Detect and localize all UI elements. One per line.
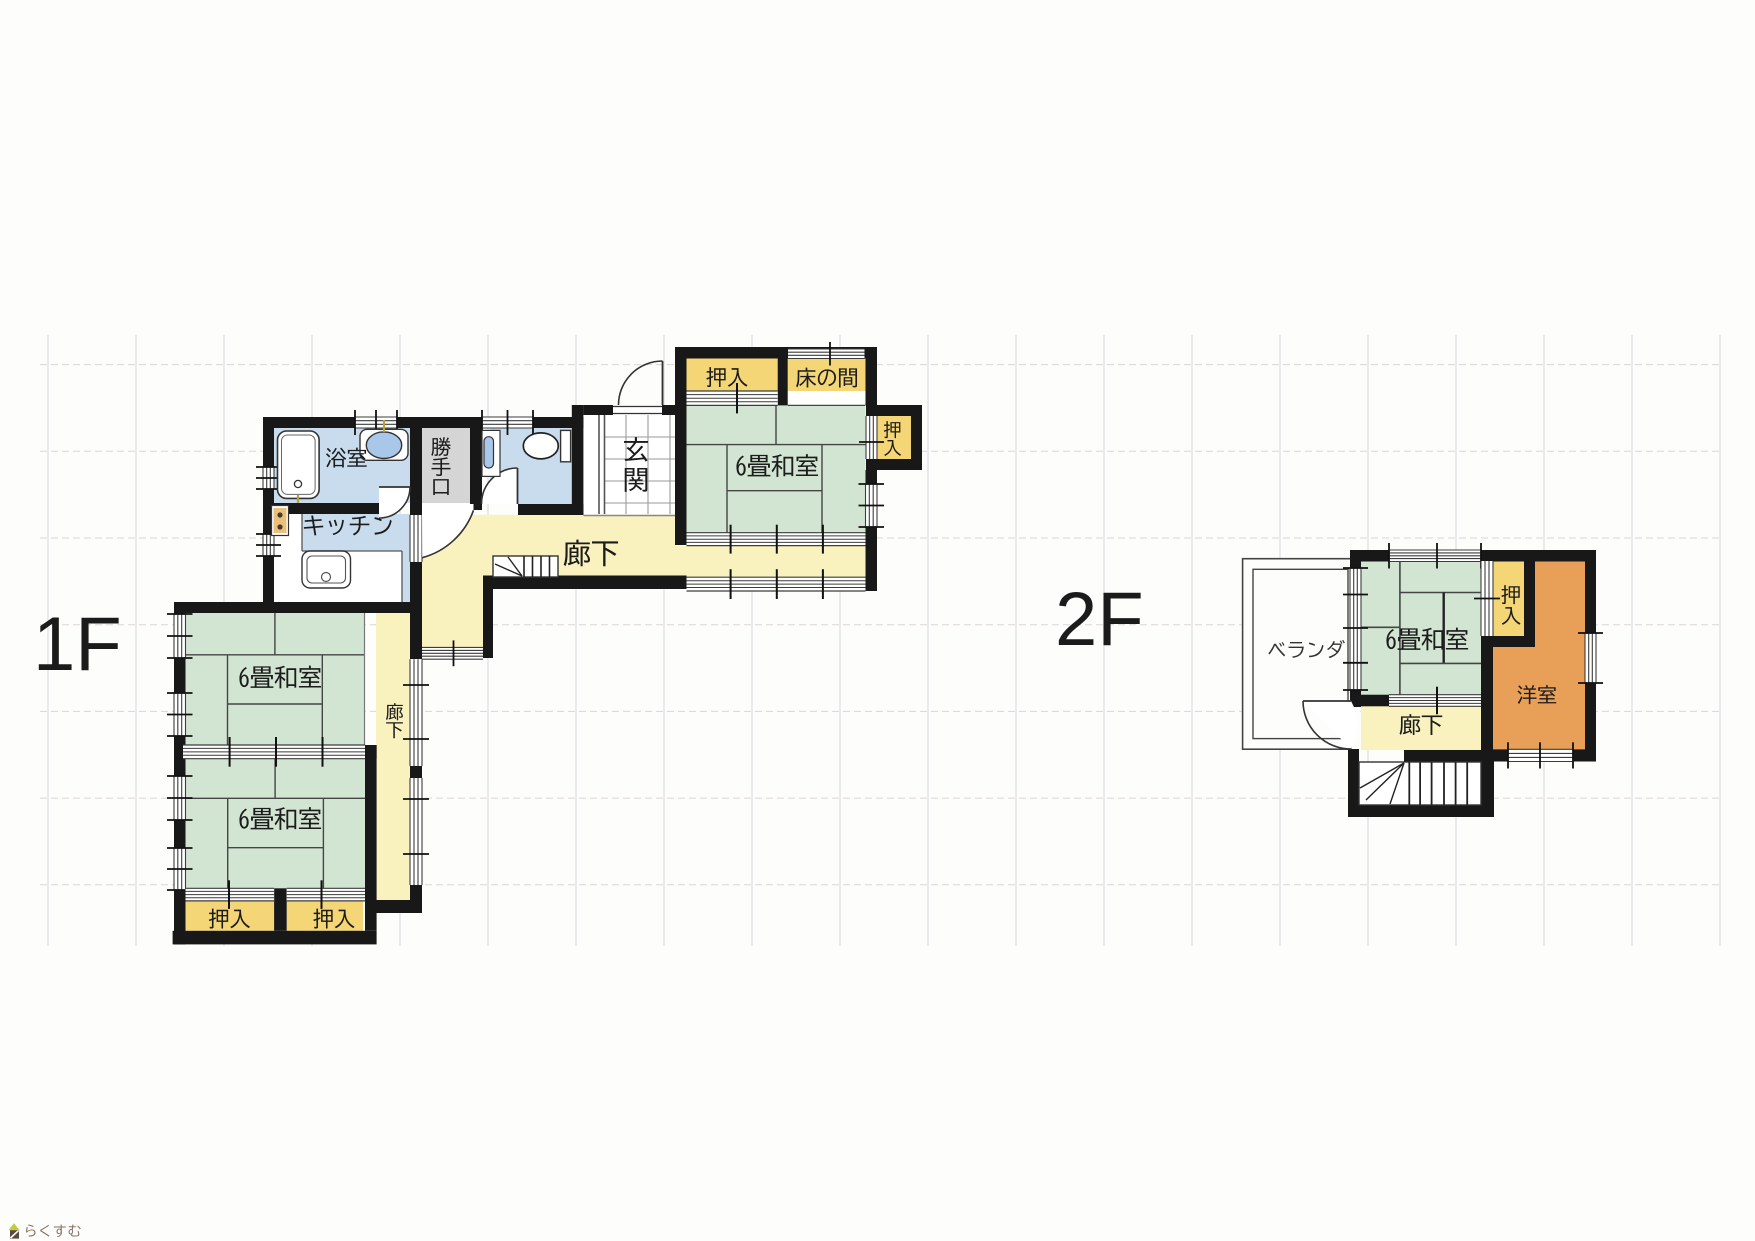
svg-text:2F: 2F <box>1055 577 1144 662</box>
svg-text:1F: 1F <box>33 602 122 687</box>
